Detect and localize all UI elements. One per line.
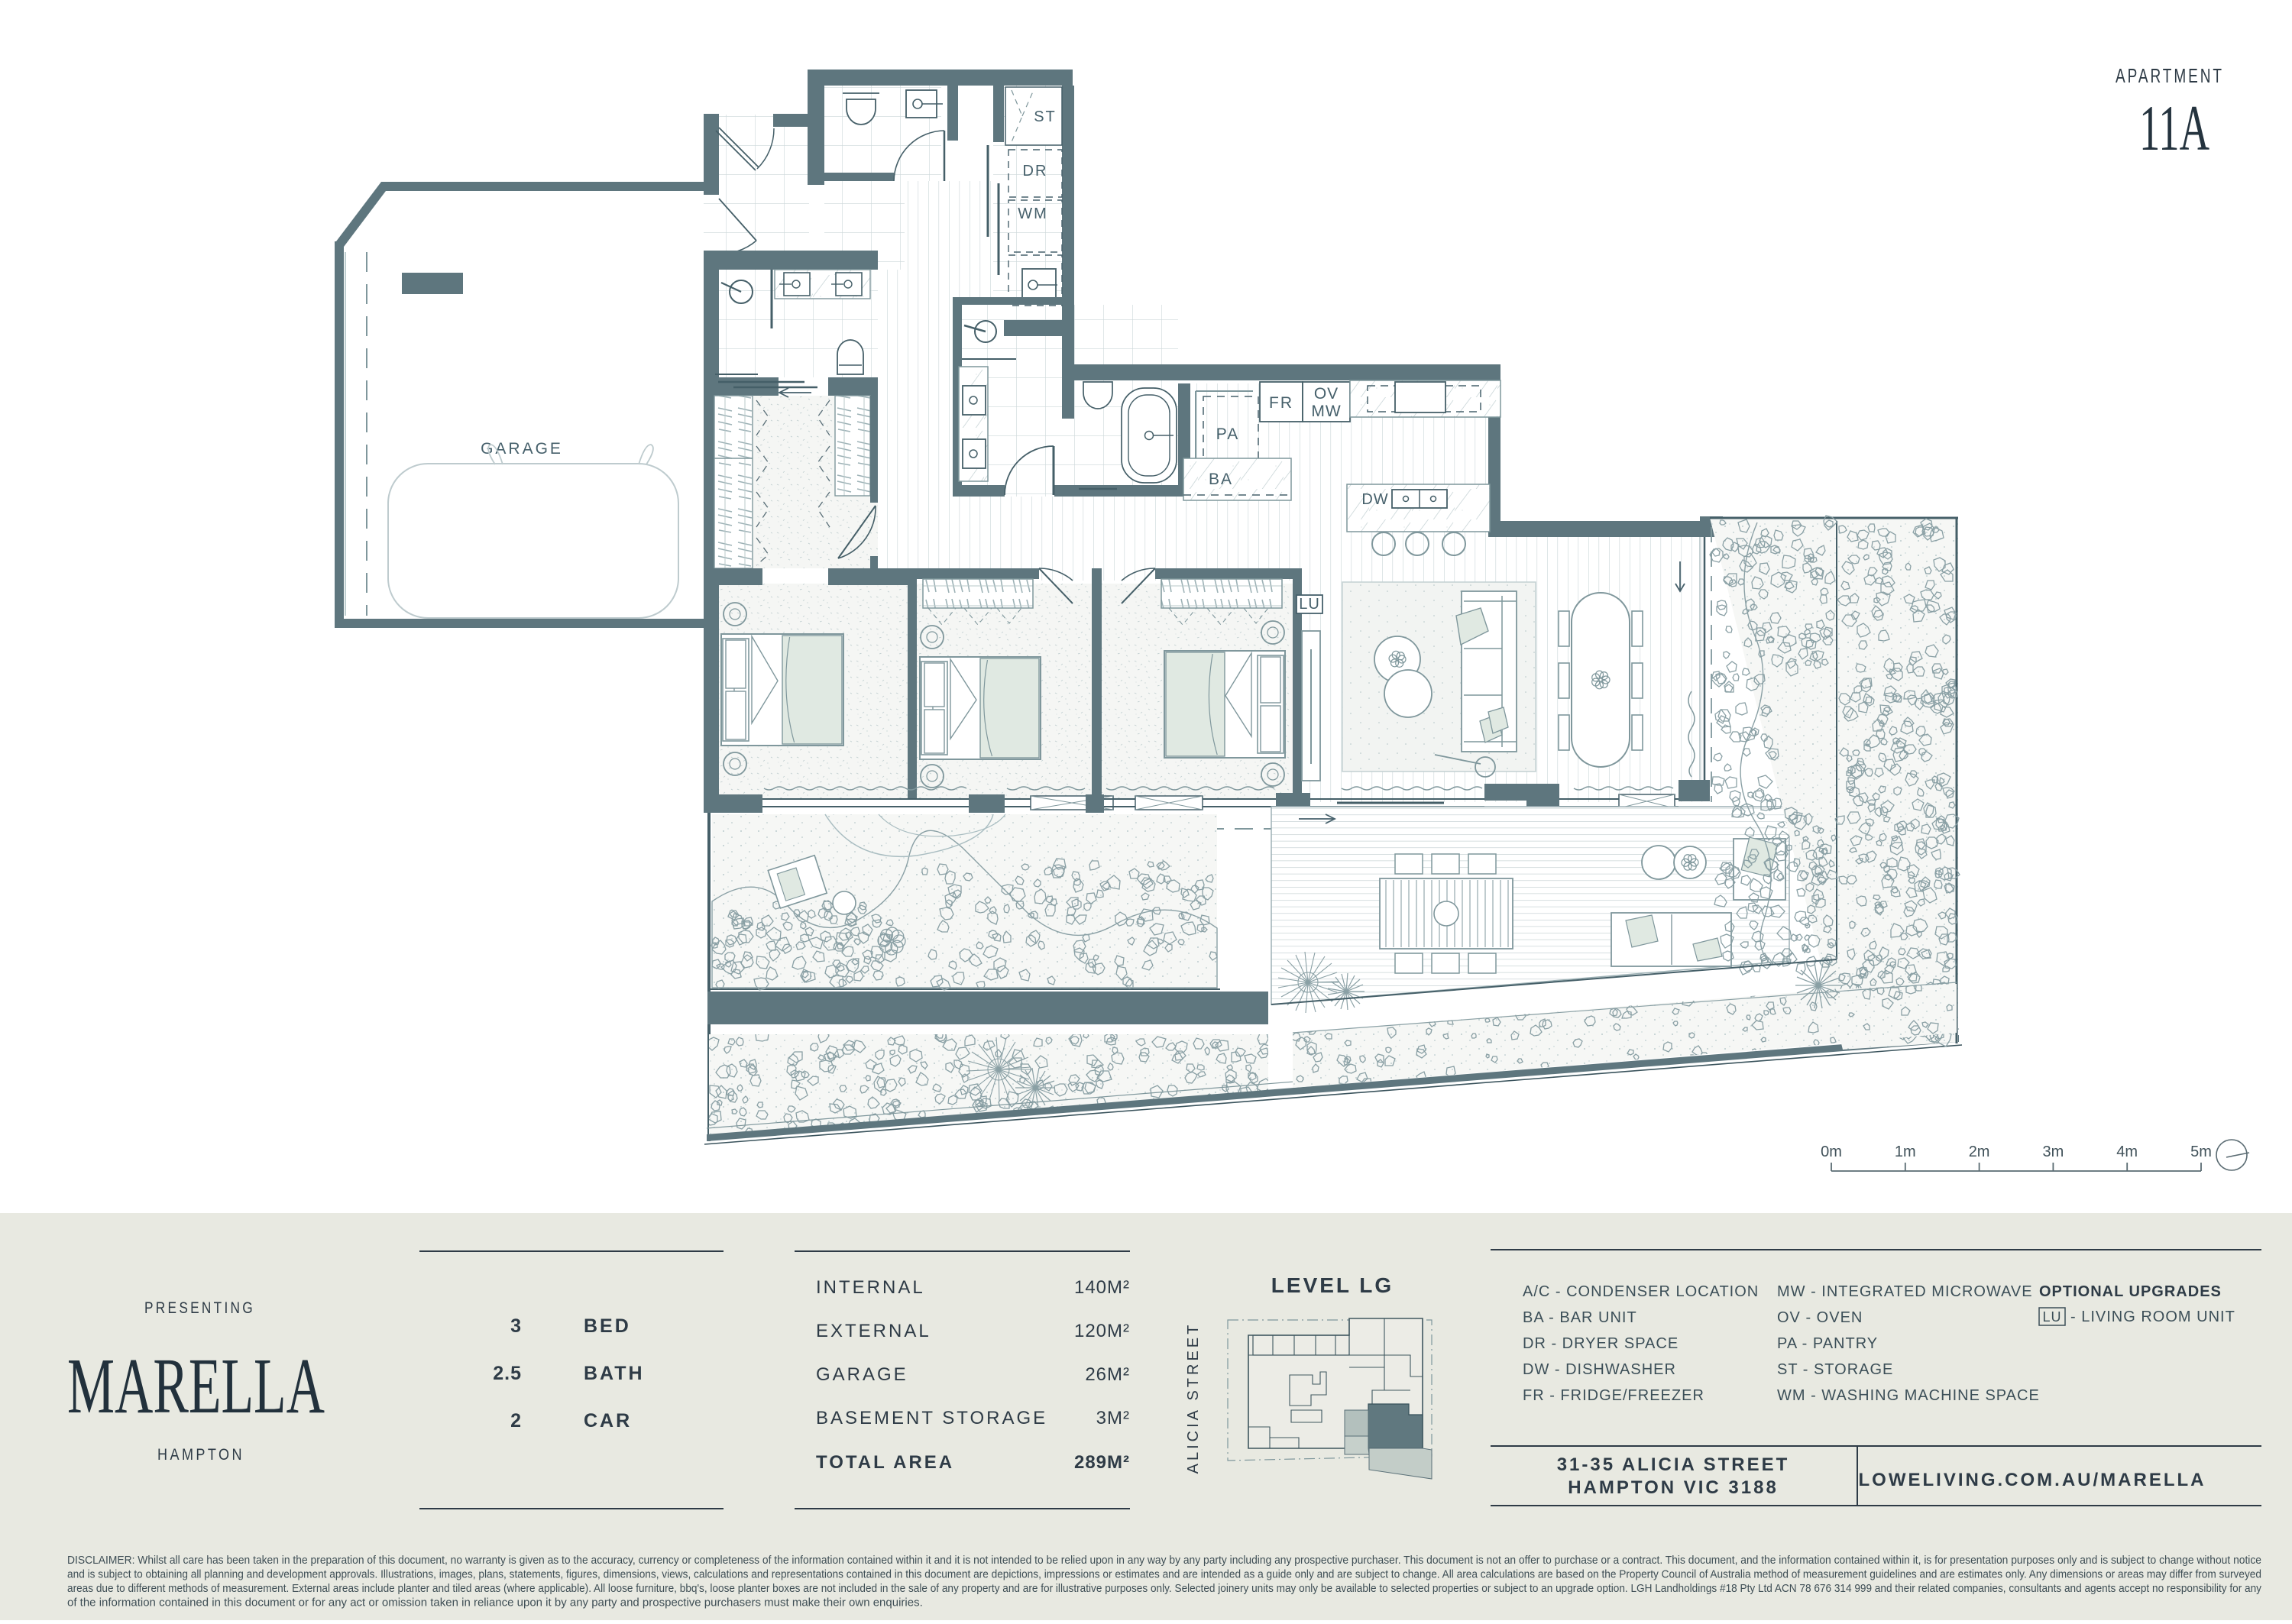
svg-text:140M²: 140M² (1074, 1277, 1130, 1298)
svg-text:3: 3 (510, 1315, 522, 1337)
svg-text:LEVEL LG: LEVEL LG (1271, 1273, 1394, 1297)
svg-text:HAMPTON: HAMPTON (157, 1446, 244, 1464)
svg-text:ST: ST (1034, 108, 1057, 125)
svg-text:CAR: CAR (584, 1410, 632, 1432)
svg-text:LU: LU (2042, 1309, 2061, 1325)
svg-text:MW: MW (1311, 403, 1341, 420)
svg-text:289M²: 289M² (1074, 1452, 1130, 1473)
svg-text:BA: BA (1209, 471, 1233, 488)
svg-text:PA: PA (1216, 425, 1239, 443)
svg-text:LU: LU (1299, 596, 1320, 613)
svg-text:PA - PANTRY: PA - PANTRY (1777, 1335, 1878, 1352)
svg-text:INTERNAL: INTERNAL (816, 1277, 925, 1298)
svg-text:DISCLAIMER: Whilst all care ha: DISCLAIMER: Whilst all care has been tak… (67, 1554, 2261, 1567)
svg-text:TOTAL AREA: TOTAL AREA (816, 1452, 954, 1473)
svg-text:WM - WASHING MACHINE SPACE: WM - WASHING MACHINE SPACE (1777, 1387, 2040, 1404)
svg-text:31-35 ALICIA STREET: 31-35 ALICIA STREET (1557, 1454, 1790, 1475)
svg-text:5m: 5m (2190, 1144, 2212, 1160)
svg-text:EXTERNAL: EXTERNAL (816, 1321, 931, 1341)
svg-text:of the information contained i: of the information contained in this doc… (67, 1597, 923, 1609)
svg-text:WM: WM (1018, 205, 1048, 222)
svg-text:APARTMENT: APARTMENT (2116, 64, 2224, 87)
svg-text:BASEMENT STORAGE: BASEMENT STORAGE (816, 1408, 1047, 1428)
svg-text:LOWELIVING.COM.AU/MARELLA: LOWELIVING.COM.AU/MARELLA (1859, 1470, 2206, 1490)
svg-text:ALICIA STREET: ALICIA STREET (1185, 1322, 1202, 1474)
svg-text:HAMPTON VIC 3188: HAMPTON VIC 3188 (1568, 1477, 1779, 1498)
svg-text:GARAGE: GARAGE (481, 440, 563, 458)
svg-text:0m: 0m (1821, 1144, 1842, 1160)
svg-text:DW: DW (1361, 491, 1388, 508)
svg-text:2m: 2m (1969, 1144, 1990, 1160)
svg-text:DW - DISHWASHER: DW - DISHWASHER (1523, 1361, 1676, 1378)
svg-text:1m: 1m (1895, 1144, 1916, 1160)
svg-text:DR - DRYER SPACE: DR - DRYER SPACE (1523, 1335, 1679, 1352)
svg-text:PRESENTING: PRESENTING (144, 1299, 255, 1317)
svg-text:GARAGE: GARAGE (816, 1364, 908, 1385)
svg-text:FR - FRIDGE/FREEZER: FR - FRIDGE/FREEZER (1523, 1387, 1704, 1404)
svg-text:3M²: 3M² (1096, 1408, 1130, 1428)
svg-text:11A: 11A (2139, 92, 2209, 164)
svg-text:and is subject to obtaining al: and is subject to obtaining all planning… (67, 1568, 2261, 1581)
svg-text:2.5: 2.5 (493, 1363, 522, 1384)
svg-text:MW - INTEGRATED MICROWAVE: MW - INTEGRATED MICROWAVE (1777, 1283, 2033, 1300)
svg-text:3m: 3m (2043, 1144, 2064, 1160)
svg-text:BA - BAR UNIT: BA - BAR UNIT (1523, 1309, 1637, 1326)
svg-text:OPTIONAL UPGRADES: OPTIONAL UPGRADES (2039, 1283, 2222, 1300)
svg-text:ST - STORAGE: ST - STORAGE (1777, 1361, 1893, 1378)
svg-text:A/C - CONDENSER LOCATION: A/C - CONDENSER LOCATION (1523, 1283, 1759, 1300)
svg-text:- LIVING ROOM UNIT: - LIVING ROOM UNIT (2070, 1309, 2235, 1325)
svg-text:OV: OV (1314, 385, 1339, 403)
svg-text:OV - OVEN: OV - OVEN (1777, 1309, 1863, 1326)
svg-text:BED: BED (584, 1315, 631, 1337)
svg-text:4m: 4m (2116, 1144, 2138, 1160)
svg-text:26M²: 26M² (1085, 1364, 1130, 1385)
svg-text:areas due to different methods: areas due to different methods of measur… (67, 1582, 2261, 1595)
svg-text:120M²: 120M² (1074, 1321, 1130, 1341)
svg-text:DR: DR (1023, 163, 1048, 180)
svg-text:FR: FR (1269, 394, 1293, 412)
svg-text:BATH: BATH (584, 1363, 645, 1384)
svg-text:2: 2 (510, 1410, 522, 1432)
svg-text:MARELLA: MARELLA (67, 1342, 325, 1430)
